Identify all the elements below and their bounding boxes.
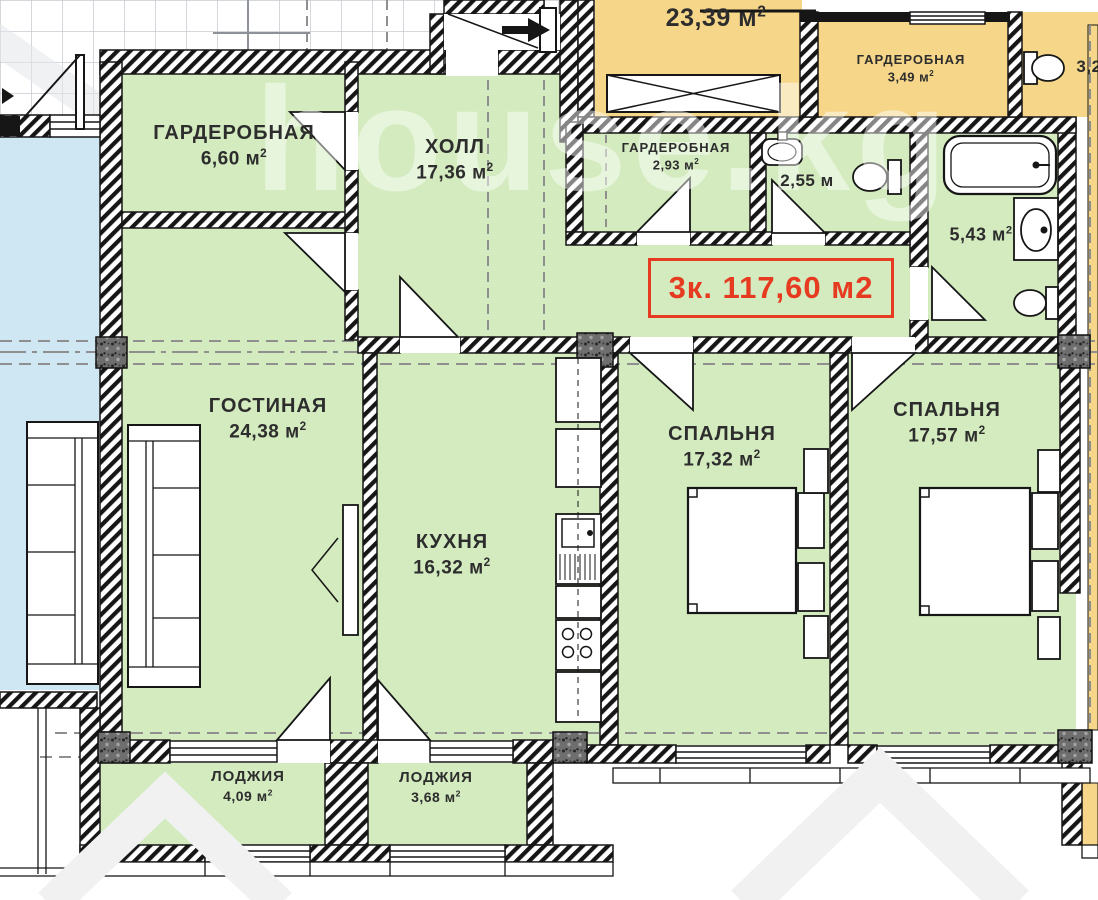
room-area: 4,09 м2: [211, 787, 285, 805]
room-label-wardrobe1: ГАРДЕРОБНАЯ 6,60 м2: [153, 120, 314, 172]
wardrobe-furniture-living: [128, 425, 200, 687]
room-area: 2,93 м2: [622, 157, 731, 174]
room-name: ГАРДЕРОБНАЯ: [857, 52, 966, 69]
room-name: ЛОДЖИЯ: [211, 767, 285, 787]
room-label-loggia2: ЛОДЖИЯ 3,68 м2: [399, 768, 473, 806]
room-label-kitchen: КУХНЯ 16,32 м2: [413, 529, 490, 581]
bathtub-icon: [944, 136, 1056, 194]
room-name: ЛОДЖИЯ: [399, 768, 473, 788]
room-label-neighbor-room: 23,39 м2: [666, 2, 767, 35]
room-name: ХОЛЛ: [416, 134, 493, 160]
toilet-icon-bathroom: [1014, 287, 1058, 319]
room-label-bathroom: 5,43 м2: [949, 223, 1012, 246]
room-name: СПАЛЬНЯ: [893, 397, 1001, 423]
room-label-wardrobe2: ГАРДЕРОБНАЯ 2,93 м2: [622, 140, 731, 174]
room-area: 3,49 м2: [857, 69, 966, 86]
room-label-bedroom1: СПАЛЬНЯ 17,32 м2: [668, 421, 776, 473]
room-area: 16,32 м2: [413, 555, 490, 581]
room-area: 24,38 м2: [209, 419, 327, 445]
window: [877, 746, 990, 763]
wardrobe-furniture-neighbor: [27, 422, 98, 684]
room-area: 23,39 м2: [666, 2, 767, 35]
room-label-living: ГОСТИНАЯ 24,38 м2: [209, 393, 327, 445]
neighbor-yellow-loggia: [1082, 783, 1098, 845]
window: [390, 845, 505, 862]
washbasin-icon: [1014, 198, 1058, 260]
room-area: 17,32 м2: [668, 447, 776, 473]
room-name: ГАРДЕРОБНАЯ: [622, 140, 731, 157]
room-area: 6,60 м2: [153, 146, 314, 172]
window: [430, 741, 513, 762]
room-label-hall: ХОЛЛ 17,36 м2: [416, 134, 493, 186]
room-area: 3,2: [1076, 56, 1098, 78]
room-label-loggia1: ЛОДЖИЯ 4,09 м2: [211, 767, 285, 805]
room-label-neighbor-wardrobe: ГАРДЕРОБНАЯ 3,49 м2: [857, 52, 966, 86]
window: [676, 746, 806, 763]
room-area: 17,57 м2: [893, 423, 1001, 449]
window: [170, 741, 277, 762]
apartment-area-badge: 3к. 117,60 м2: [648, 258, 894, 318]
room-area: 5,43 м2: [949, 223, 1012, 246]
room-name: КУХНЯ: [413, 529, 490, 555]
room-name: ГАРДЕРОБНАЯ: [153, 120, 314, 146]
room-label-wc: 2,55 м: [780, 170, 833, 192]
crossed-wardrobe-furniture: [607, 75, 780, 112]
room-label-bedroom2: СПАЛЬНЯ 17,57 м2: [893, 397, 1001, 449]
room-area: 3,68 м2: [399, 788, 473, 806]
kitchen-counter: [556, 358, 601, 722]
toilet-icon-wc: [853, 160, 901, 194]
room-area: 17,36 м2: [416, 160, 493, 186]
room-area: 2,55 м: [780, 170, 833, 192]
room-name: СПАЛЬНЯ: [668, 421, 776, 447]
floor-plan: house.kg ГАРДЕРОБНАЯ 6,60 м2 ХОЛЛ 17,36 …: [0, 0, 1098, 900]
room-label-neighbor-right: 3,2: [1076, 56, 1098, 78]
toilet-icon-neighbor: [1024, 52, 1064, 84]
window: [910, 12, 985, 24]
room-name: ГОСТИНАЯ: [209, 393, 327, 419]
